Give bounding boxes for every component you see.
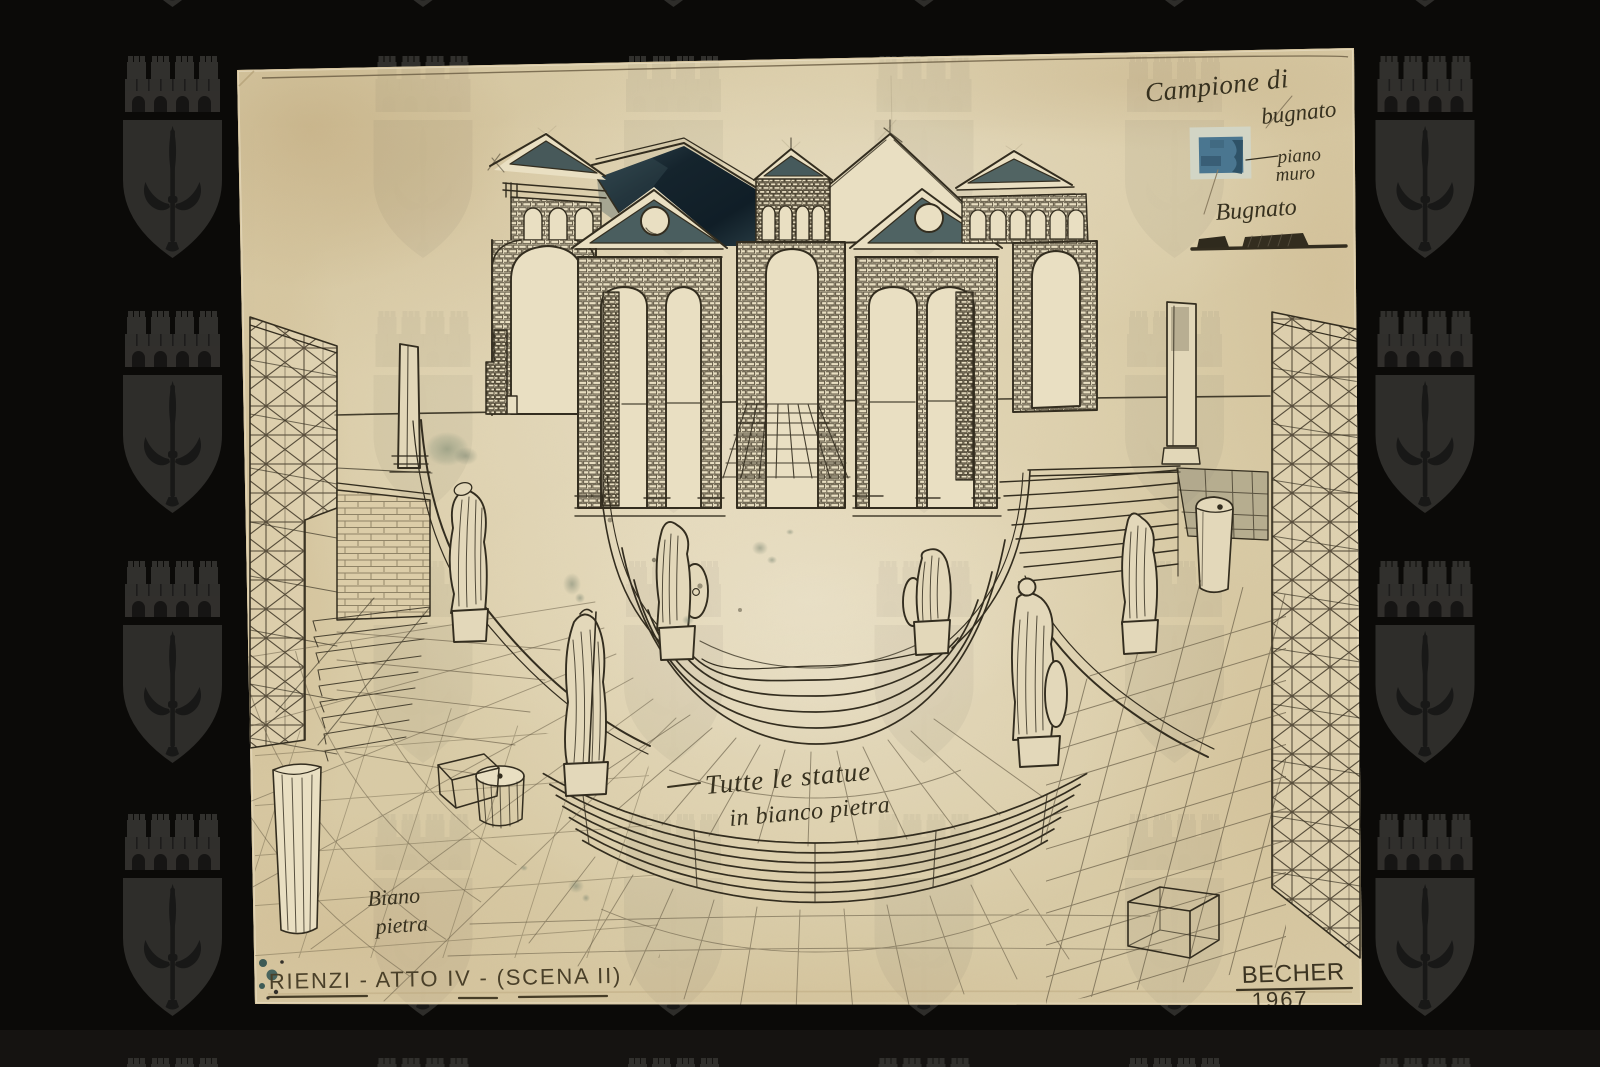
svg-text:Biano: Biano xyxy=(367,882,421,911)
svg-text:BECHER: BECHER xyxy=(1241,958,1345,989)
svg-text:muro: muro xyxy=(1275,162,1316,186)
svg-text:pietra: pietra xyxy=(373,910,429,939)
